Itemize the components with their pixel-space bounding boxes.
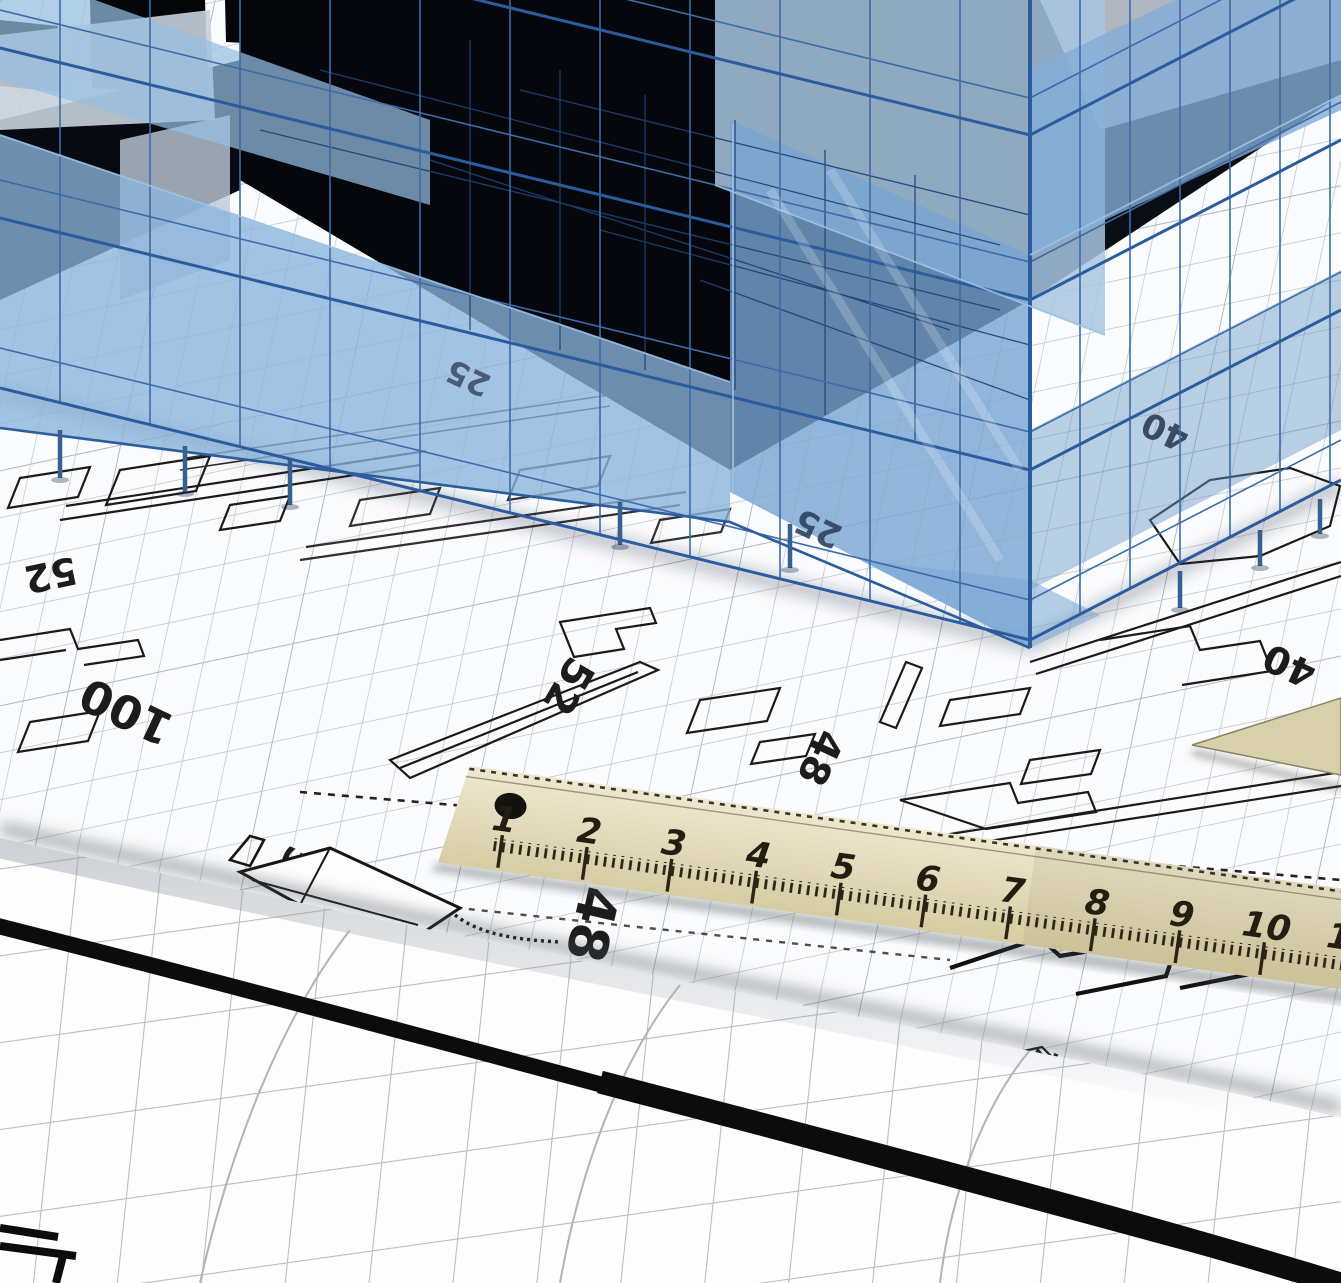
scene: 52 100 52 48 40 5 48 7 25 [0, 0, 1341, 1283]
ruler-number-10: 10 [1240, 904, 1294, 950]
scene-canvas: 52 100 52 48 40 5 48 7 25 [0, 0, 1341, 1283]
building-void-sq3 [225, 0, 332, 48]
